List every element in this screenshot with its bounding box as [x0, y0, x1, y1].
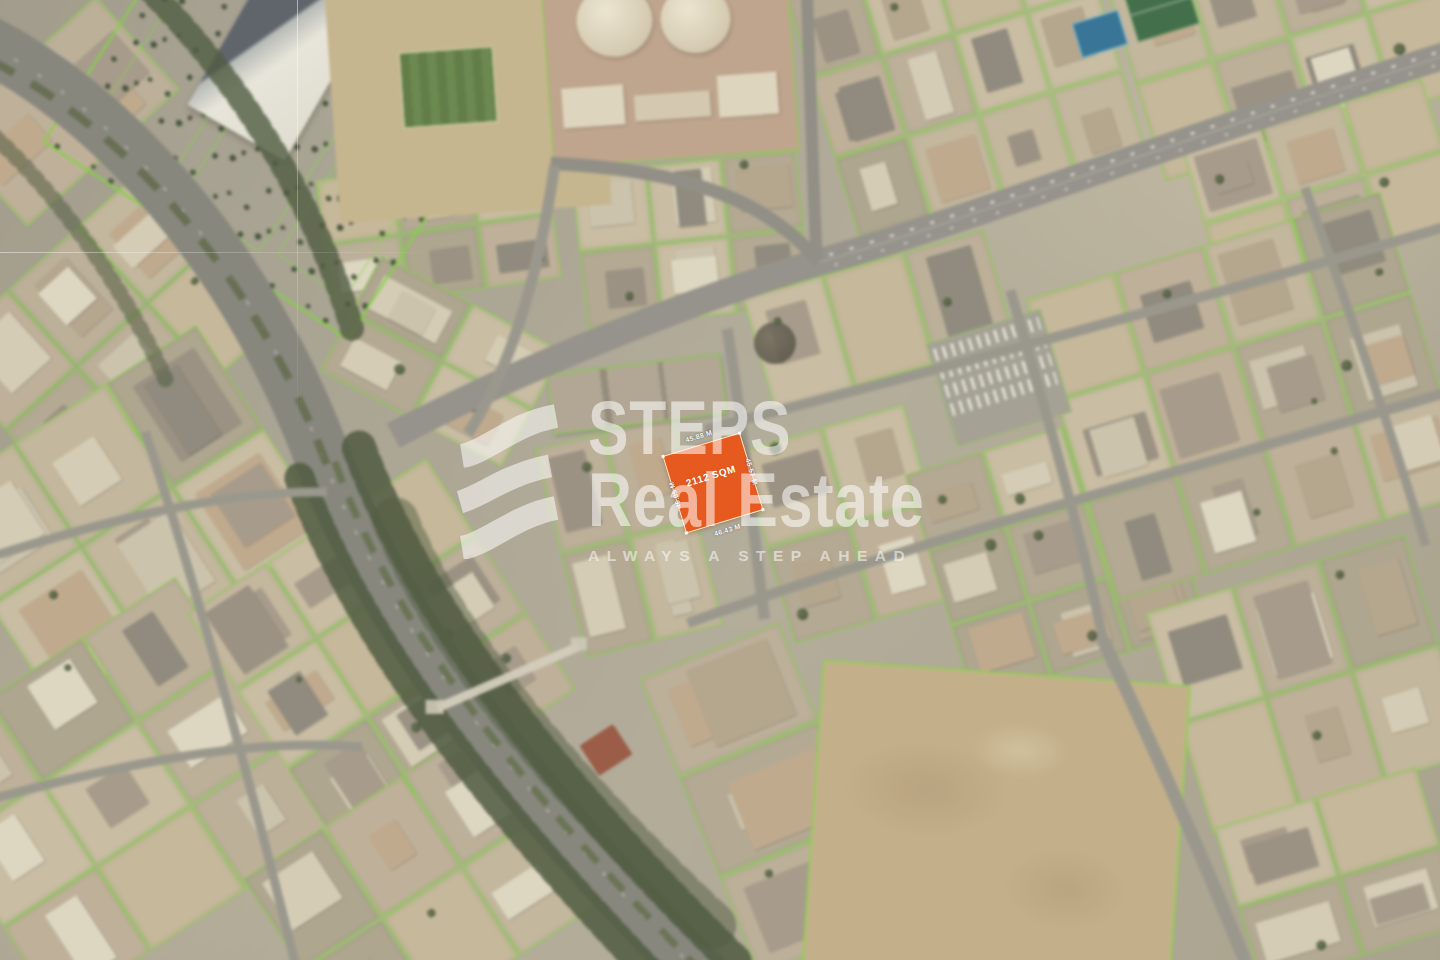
street [1101, 636, 1249, 960]
north-road [807, 0, 817, 260]
plot-corner-marker [661, 455, 665, 459]
satellite-map-image: 2112 SQM 45.88 M 45.57 M 46.43 M 46.05 M… [0, 0, 1440, 960]
plot-area-label: 2112 SQM [671, 459, 750, 493]
street [1010, 290, 1103, 639]
street [145, 432, 296, 960]
school-road [551, 163, 819, 262]
street [0, 745, 362, 803]
bridge-ramp [571, 637, 587, 650]
street [688, 389, 1440, 623]
bridge-ramp [426, 700, 444, 714]
